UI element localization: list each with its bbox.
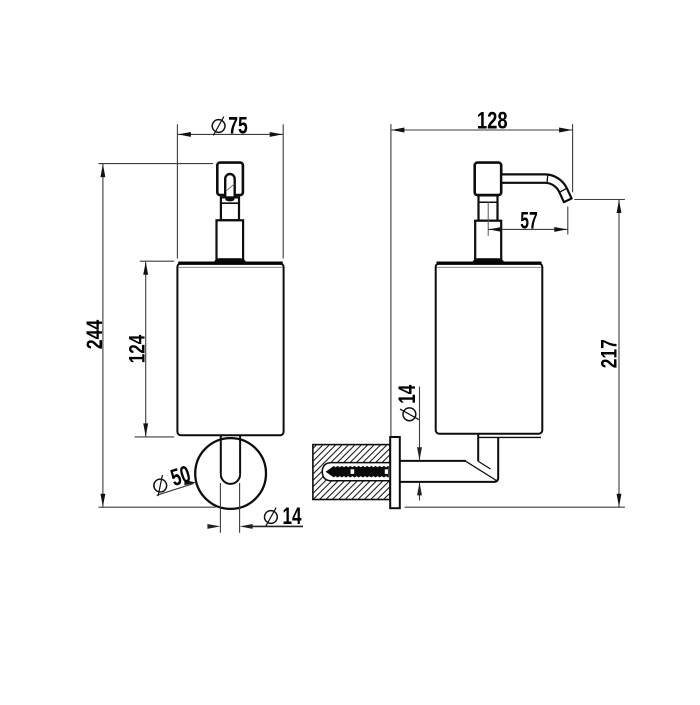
svg-text:124: 124 (125, 335, 150, 363)
svg-text:14: 14 (283, 503, 302, 529)
svg-text:128: 128 (477, 107, 508, 134)
svg-text:217: 217 (597, 339, 621, 368)
svg-text:75: 75 (228, 113, 248, 139)
svg-text:57: 57 (520, 208, 537, 234)
svg-text:244: 244 (83, 319, 107, 349)
svg-text:14: 14 (394, 384, 420, 403)
